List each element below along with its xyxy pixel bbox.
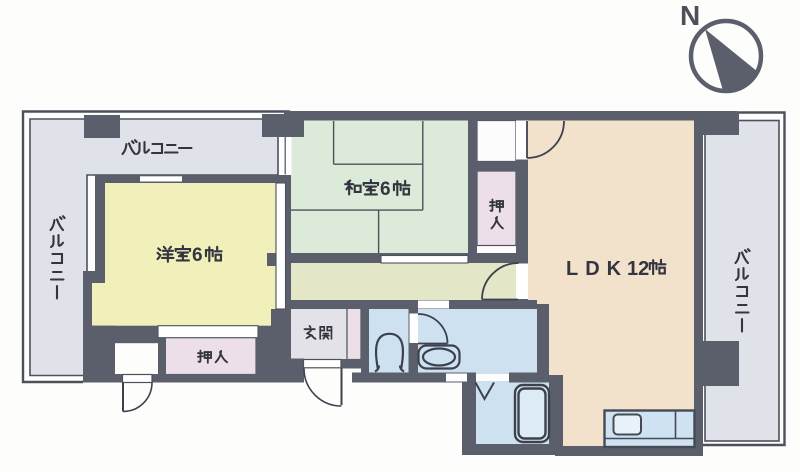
svg-text:6: 6 xyxy=(192,245,203,266)
svg-text:12: 12 xyxy=(627,258,649,280)
svg-text:6: 6 xyxy=(380,179,391,200)
svg-text:LDK: LDK xyxy=(566,258,628,280)
svg-text:N: N xyxy=(680,0,700,31)
